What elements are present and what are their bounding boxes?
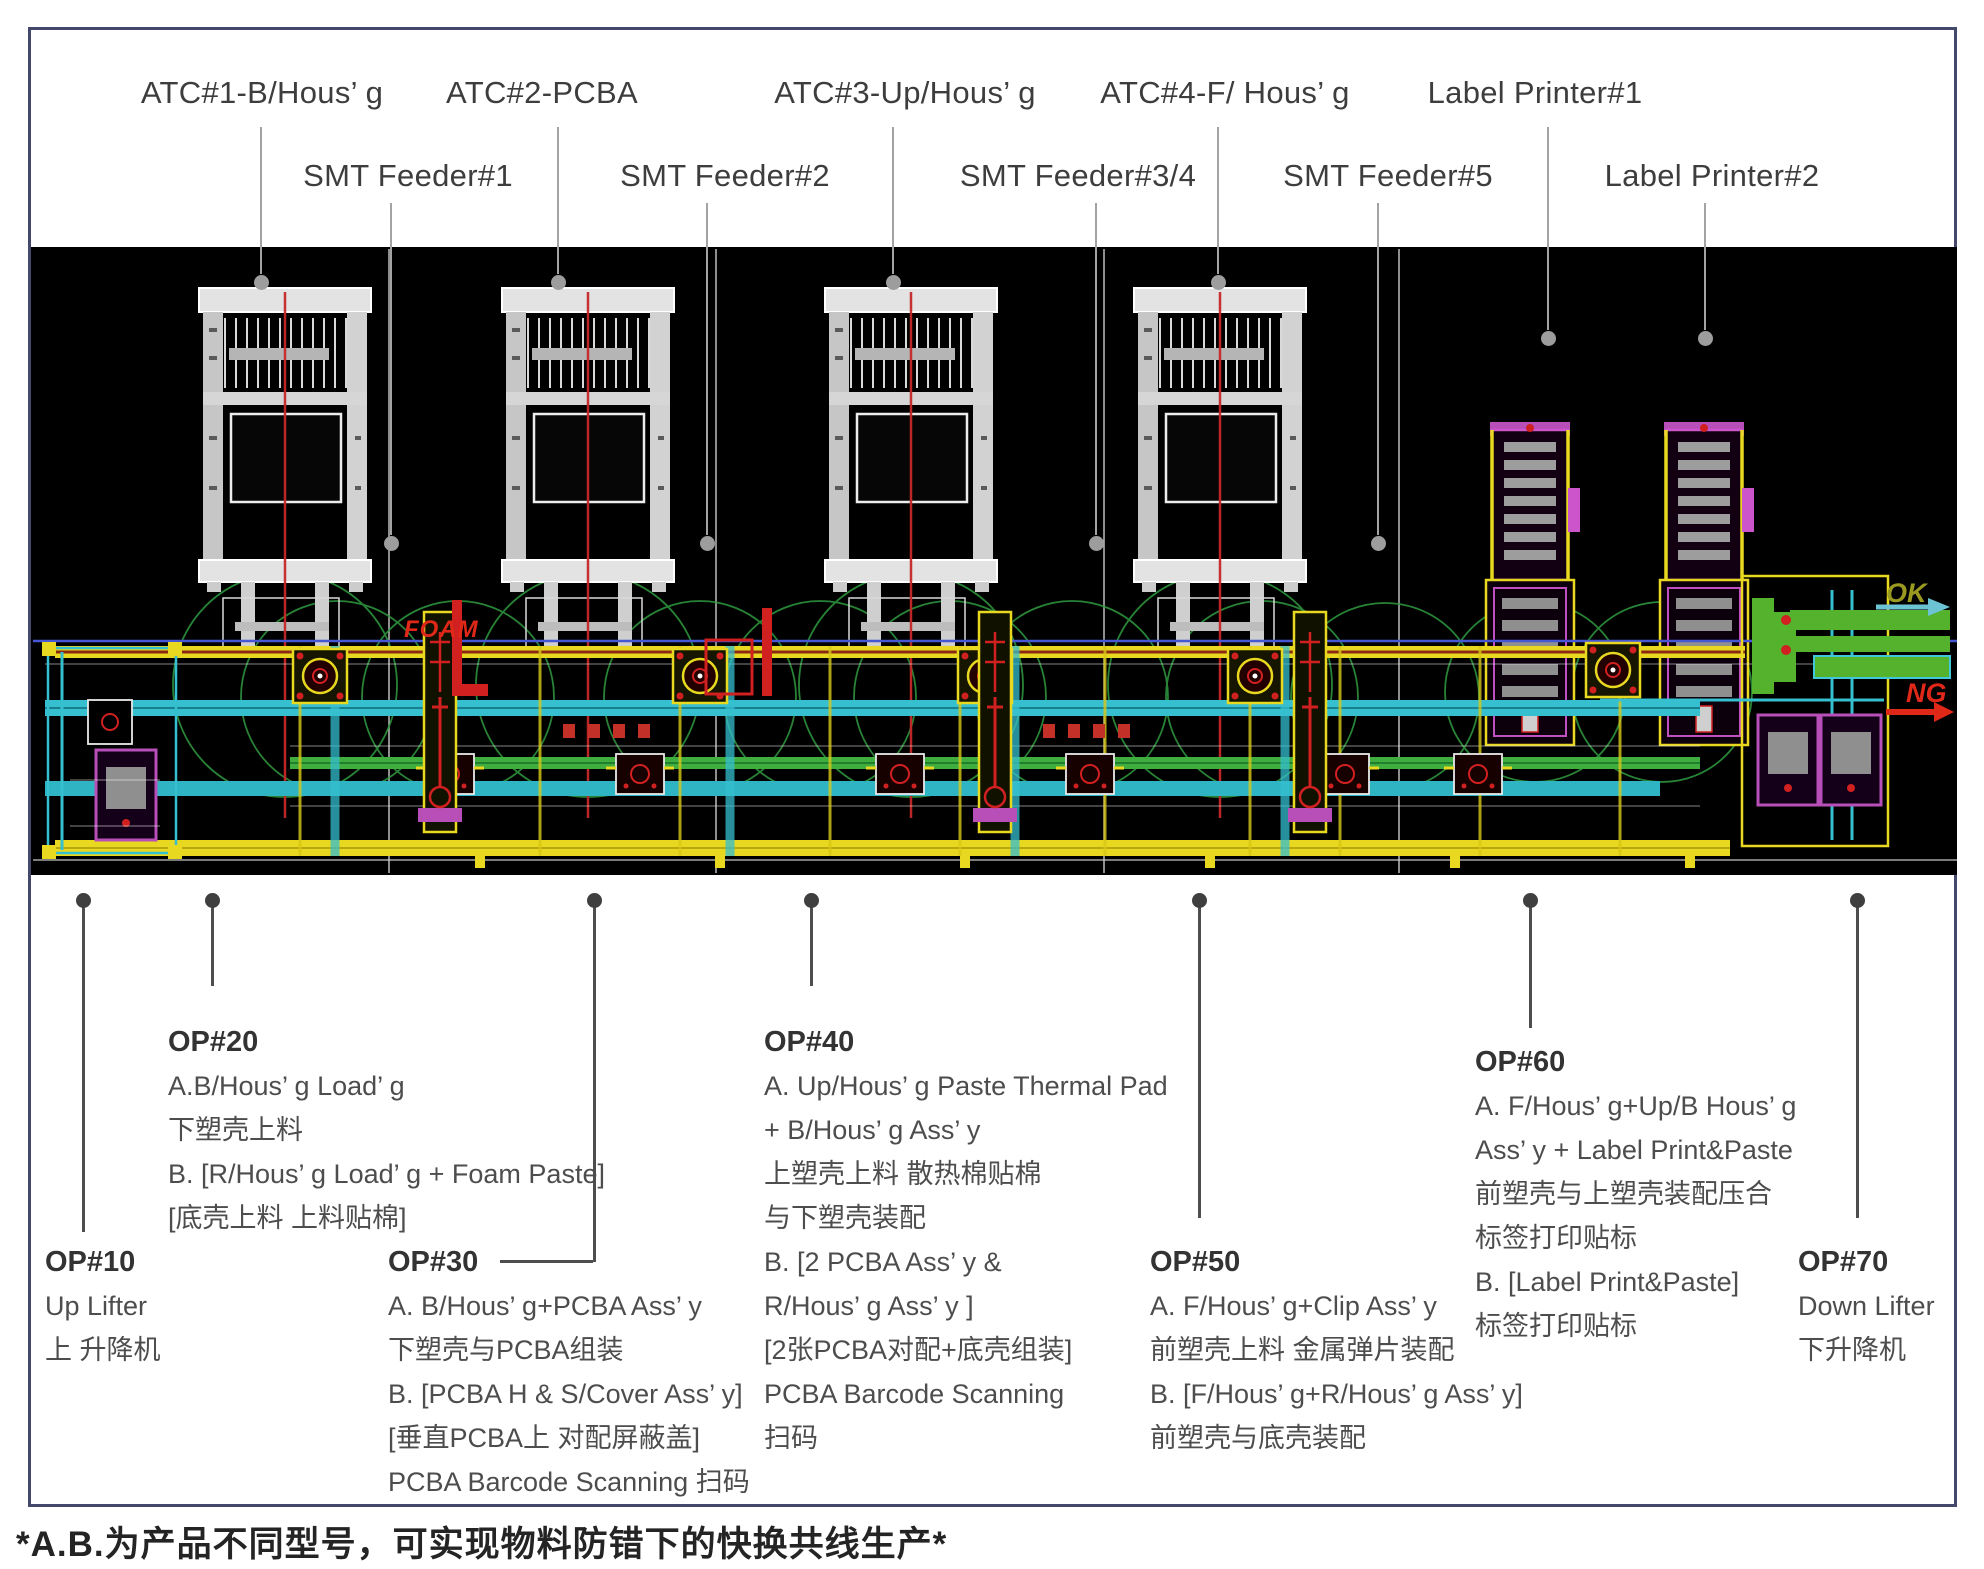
op-line-op70-1: Down Lifter — [1798, 1284, 1935, 1328]
op-line-op40-8: PCBA Barcode Scanning — [764, 1372, 1168, 1416]
op-callout-line-op20 — [211, 906, 214, 986]
op-title-op40: OP#40 — [764, 1020, 1168, 1064]
top-callout-dot-atc-1 — [254, 275, 269, 290]
op-title-op10: OP#10 — [45, 1240, 161, 1284]
op-callout-dot-op50 — [1192, 893, 1207, 908]
op-title-op30: OP#30 — [388, 1240, 750, 1284]
op-block-op50: OP#50A. F/Hous’ g+Clip Ass’ y前塑壳上料 金属弹片装… — [1150, 1240, 1523, 1460]
top-callout-label-atc-1: ATC#1-B/Hous’ g — [141, 75, 383, 111]
op-callout-line-op10 — [82, 906, 85, 1232]
top-callout-label-label-printer-1: Label Printer#1 — [1428, 75, 1643, 111]
op-line-op60-5: B. [Label Print&Paste] — [1475, 1260, 1796, 1304]
op-line-op70-2: 下升降机 — [1798, 1328, 1935, 1372]
op-callout-dot-op20 — [205, 893, 220, 908]
top-callout-line-atc-2 — [557, 127, 559, 274]
top-callout-label-smt-feeder-2: SMT Feeder#2 — [620, 158, 830, 194]
op-block-op40: OP#40A. Up/Hous’ g Paste Thermal Pad+ B/… — [764, 1020, 1168, 1460]
op-line-op60-2: Ass’ y + Label Print&Paste — [1475, 1128, 1796, 1172]
top-callout-dot-atc-3 — [886, 275, 901, 290]
op-line-op40-9: 扫码 — [764, 1416, 1168, 1460]
cad-text-ng: NG — [1906, 678, 1947, 708]
top-callout-label-atc-4: ATC#4-F/ Hous’ g — [1100, 75, 1349, 111]
top-callout-line-label-printer-1 — [1547, 127, 1549, 330]
op-callout-line-op40 — [810, 906, 813, 986]
top-callout-line-smt-feeder-2 — [706, 203, 708, 535]
top-callout-label-label-printer-2: Label Printer#2 — [1605, 158, 1820, 194]
op-line-op60-4: 标签打印贴标 — [1475, 1216, 1796, 1260]
op-line-op10-2: 上 升降机 — [45, 1328, 161, 1372]
op-line-op30-1: A. B/Hous’ g+PCBA Ass’ y — [388, 1284, 750, 1328]
top-callout-line-atc-1 — [260, 127, 262, 274]
op-line-op40-5: B. [2 PCBA Ass’ y & — [764, 1240, 1168, 1284]
op-line-op50-4: 前塑壳与底壳装配 — [1150, 1416, 1523, 1460]
cad-text-ok: OK — [1886, 578, 1929, 608]
top-callout-dot-smt-feeder-34 — [1089, 536, 1104, 551]
op-line-op30-2: 下塑壳与PCBA组装 — [388, 1328, 750, 1372]
top-callout-label-smt-feeder-34: SMT Feeder#3/4 — [960, 158, 1196, 194]
top-callout-dot-label-printer-1 — [1541, 331, 1556, 346]
top-callout-dot-atc-4 — [1211, 275, 1226, 290]
op-callout-dot-op40 — [804, 893, 819, 908]
top-callout-line-smt-feeder-34 — [1095, 203, 1097, 535]
op-block-op60: OP#60A. F/Hous’ g+Up/B Hous’ gAss’ y + L… — [1475, 1040, 1796, 1348]
op-line-op50-3: B. [F/Hous’ g+R/Hous’ g Ass’ y] — [1150, 1372, 1523, 1416]
cad-text-foam: FOAM — [404, 616, 479, 643]
op-line-op40-1: A. Up/Hous’ g Paste Thermal Pad — [764, 1064, 1168, 1108]
op-line-op60-3: 前塑壳与上塑壳装配压合 — [1475, 1172, 1796, 1216]
op-line-op50-2: 前塑壳上料 金属弹片装配 — [1150, 1328, 1523, 1372]
top-callout-dot-smt-feeder-2 — [700, 536, 715, 551]
op-line-op60-1: A. F/Hous’ g+Up/B Hous’ g — [1475, 1084, 1796, 1128]
op-callout-line-op70 — [1856, 906, 1859, 1218]
op-callout-dot-op30 — [587, 893, 602, 908]
op-block-op30: OP#30A. B/Hous’ g+PCBA Ass’ y下塑壳与PCBA组装B… — [388, 1240, 750, 1504]
op-title-op50: OP#50 — [1150, 1240, 1523, 1284]
production-line-layout-figure: FOAM OK NG ATC#1-B/Hous’ gATC#2-PCBAATC#… — [0, 0, 1984, 1569]
top-callout-line-atc-4 — [1217, 127, 1219, 274]
op-line-op20-4: [底壳上料 上料贴棉] — [168, 1196, 605, 1240]
op-title-op20: OP#20 — [168, 1020, 605, 1064]
op-line-op60-6: 标签打印贴标 — [1475, 1304, 1796, 1348]
op-callout-dot-op70 — [1850, 893, 1865, 908]
top-callout-dot-atc-2 — [551, 275, 566, 290]
top-callout-line-smt-feeder-5 — [1377, 203, 1379, 535]
op-line-op10-1: Up Lifter — [45, 1284, 161, 1328]
op-line-op40-3: 上塑壳上料 散热棉贴棉 — [764, 1152, 1168, 1196]
op-line-op40-7: [2张PCBA对配+底壳组装] — [764, 1328, 1168, 1372]
op-line-op20-3: B. [R/Hous’ g Load’ g + Foam Paste] — [168, 1152, 605, 1196]
top-callout-label-smt-feeder-5: SMT Feeder#5 — [1283, 158, 1493, 194]
top-callout-label-atc-2: ATC#2-PCBA — [446, 75, 638, 111]
op-block-op20: OP#20A.B/Hous’ g Load’ g下塑壳上料B. [R/Hous’… — [168, 1020, 605, 1240]
top-callout-dot-smt-feeder-1 — [384, 536, 399, 551]
op-line-op50-1: A. F/Hous’ g+Clip Ass’ y — [1150, 1284, 1523, 1328]
op-line-op40-6: R/Hous’ g Ass’ y ] — [764, 1284, 1168, 1328]
op-line-op30-3: B. [PCBA H & S/Cover Ass’ y] — [388, 1372, 750, 1416]
op-line-op30-5: PCBA Barcode Scanning 扫码 — [388, 1460, 750, 1504]
op-callout-line-op50 — [1198, 906, 1201, 1218]
top-callout-dot-smt-feeder-5 — [1371, 536, 1386, 551]
op-callout-dot-op60 — [1523, 893, 1538, 908]
op-line-op30-4: [垂直PCBA上 对配屏蔽盖] — [388, 1416, 750, 1460]
footnote-text: *A.B.为产品不同型号，可实现物料防错下的快换共线生产* — [16, 1516, 947, 1567]
op-block-op10: OP#10Up Lifter上 升降机 — [45, 1240, 161, 1372]
op-line-op40-2: + B/Hous’ g Ass’ y — [764, 1108, 1168, 1152]
op-line-op40-4: 与下塑壳装配 — [764, 1196, 1168, 1240]
op-callout-dot-op10 — [76, 893, 91, 908]
top-callout-line-smt-feeder-1 — [390, 203, 392, 535]
top-callout-dot-label-printer-2 — [1698, 331, 1713, 346]
op-line-op20-2: 下塑壳上料 — [168, 1108, 605, 1152]
top-callout-label-smt-feeder-1: SMT Feeder#1 — [303, 158, 513, 194]
op-line-op20-1: A.B/Hous’ g Load’ g — [168, 1064, 605, 1108]
op-title-op70: OP#70 — [1798, 1240, 1935, 1284]
op-callout-line-op60 — [1529, 906, 1532, 1028]
top-callout-label-atc-3: ATC#3-Up/Hous’ g — [774, 75, 1036, 111]
op-block-op70: OP#70Down Lifter下升降机 — [1798, 1240, 1935, 1372]
top-callout-line-atc-3 — [892, 127, 894, 274]
op-title-op60: OP#60 — [1475, 1040, 1796, 1084]
top-callout-line-label-printer-2 — [1704, 203, 1706, 330]
